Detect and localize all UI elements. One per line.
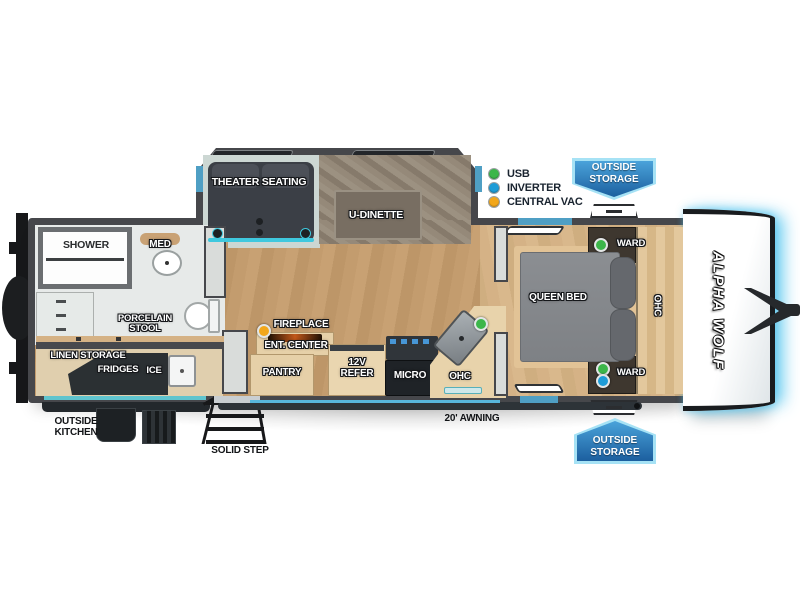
legend-row-central-vac: CENTRAL VAC: [488, 195, 583, 209]
outside-kitchen-trim: [44, 396, 206, 400]
awning-label: 20' AWNING: [436, 414, 508, 425]
hitch-tongue: [786, 304, 800, 316]
cabinet-vent: [444, 387, 482, 394]
micro-label: MICRO: [386, 371, 434, 382]
drawer-handle: [56, 328, 66, 331]
drawer-handle: [56, 314, 66, 317]
bath-counter-wall: [36, 342, 224, 349]
shower-door-line: [46, 258, 124, 261]
toilet-tank: [208, 299, 220, 333]
sink-drain: [459, 336, 464, 341]
sofa-accent-light: [208, 238, 314, 242]
cupholder-icon: [256, 218, 263, 225]
central-vac-legend-icon: [488, 196, 500, 208]
faucet-icon: [76, 337, 81, 341]
ohc-bedroom-label: OHC: [651, 267, 662, 343]
outside-storage-badge-top: OUTSIDE STORAGE: [572, 158, 656, 200]
shower-label: SHOWER: [40, 240, 132, 251]
solid-step-label: SOLID STEP: [204, 446, 276, 457]
bedroom-wall: [494, 226, 508, 282]
ent-center-label: ENT. CENTER: [258, 341, 334, 352]
pillow: [610, 309, 636, 361]
floorplan-canvas: THEATER SEATING U-DINETTE SHOWER MED POR…: [0, 0, 800, 600]
bedroom-wall: [494, 332, 508, 396]
window-icon: [520, 396, 558, 403]
ice-label: ICE: [140, 366, 168, 376]
usb-indicator-icon: [594, 238, 608, 252]
legend-label: CENTRAL VAC: [507, 196, 583, 208]
brand-logo: ALPHA WOLF: [709, 239, 727, 384]
legend-label: USB: [507, 168, 530, 180]
outside-kitchen-grill: [142, 410, 176, 444]
linen-storage-label: LINEN STORAGE: [36, 351, 140, 361]
fireplace-label: FIREPLACE: [266, 320, 336, 331]
roof-vent-icon: [503, 226, 565, 235]
legend-row-usb: USB: [488, 167, 583, 181]
outside-storage-bottom-label: OUTSIDE STORAGE: [574, 435, 656, 458]
awning-end-cap: [634, 403, 640, 409]
med-label: MED: [134, 240, 186, 251]
ward-top-label: WARD: [608, 239, 654, 249]
cupholder-icon: [256, 229, 263, 236]
drawer-handle: [56, 300, 66, 303]
usb-indicator-icon: [474, 317, 488, 331]
inverter-indicator-icon: [596, 374, 610, 388]
theater-seating-label: THEATER SEATING: [200, 177, 318, 188]
cupholder-icon: [300, 228, 311, 239]
ward-bottom-label: WARD: [608, 368, 654, 378]
outside-storage-top-label: OUTSIDE STORAGE: [572, 162, 656, 185]
outside-kitchen-label: OUTSIDE KITCHEN: [44, 417, 108, 439]
usb-legend-icon: [488, 168, 500, 180]
roof-vent-icon: [513, 384, 564, 393]
faucet-icon: [116, 337, 121, 341]
cupholder-icon: [212, 228, 223, 239]
central-vac-indicator-icon: [257, 324, 271, 338]
refer-label: 12V REFER: [335, 358, 379, 380]
range-knobs: [390, 339, 434, 344]
legend-label: INVERTER: [507, 182, 561, 194]
bath-sink-drain: [165, 261, 169, 265]
front-cap: [683, 209, 775, 411]
queen-bed-label: QUEEN BED: [528, 293, 588, 304]
legend-row-inverter: INVERTER: [488, 181, 583, 195]
ice-maker-dot: [180, 369, 184, 373]
storage-hatch-handle: [606, 210, 622, 213]
awning-bar: [218, 402, 642, 410]
partition-wall: [222, 330, 248, 394]
u-dinette-label: U-DINETTE: [324, 210, 428, 221]
pillow: [610, 257, 636, 309]
legend: USB INVERTER CENTRAL VAC: [488, 167, 583, 209]
queen-bed: [520, 252, 620, 362]
refer-top-strip: [330, 345, 384, 351]
slide-wall-window-icon: [475, 166, 482, 192]
porcelain-stool-label: PORCELAIN STOOL: [110, 314, 180, 335]
inverter-legend-icon: [488, 182, 500, 194]
awning-trim-light: [250, 400, 500, 403]
ohc-kitchen-label: OHC: [438, 372, 482, 383]
window-icon: [518, 218, 572, 225]
storage-hatch-handle: [606, 406, 622, 409]
pantry-label: PANTRY: [252, 368, 312, 379]
